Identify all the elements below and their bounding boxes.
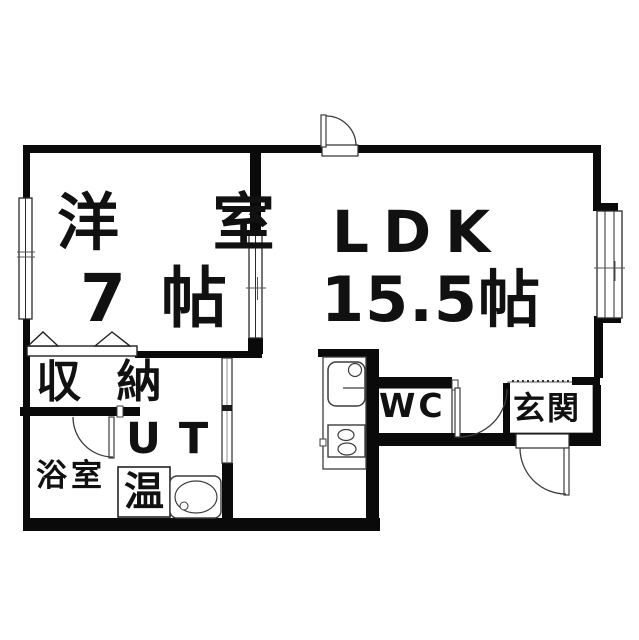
back-door — [321, 115, 358, 156]
room-label-entrance: 玄関 — [513, 392, 581, 424]
gas-stove — [328, 425, 365, 457]
entrance-door — [516, 434, 569, 495]
room-label-ldk: LDK — [332, 203, 504, 261]
window-right — [594, 211, 625, 318]
room-label-closet: 収 納 — [36, 359, 172, 404]
room-label-utility: UT — [126, 418, 226, 461]
floor-plan: 洋 室 7 帖 LDK 15.5帖 収 納 UT WC 玄関 浴室 温 — [0, 0, 639, 640]
room-label-wc: WC — [379, 389, 446, 422]
hall-door — [452, 380, 507, 437]
room-size-western: 7 帖 — [80, 266, 233, 332]
wash-basin — [170, 476, 221, 518]
kitchen-sink — [328, 362, 365, 406]
room-label-western: 洋 室 — [57, 192, 311, 254]
room-label-water-heater: 温 — [124, 472, 164, 512]
room-size-ldk: 15.5帖 — [321, 269, 541, 331]
window-left — [17, 198, 35, 319]
room-label-bathroom: 浴室 — [36, 461, 106, 492]
